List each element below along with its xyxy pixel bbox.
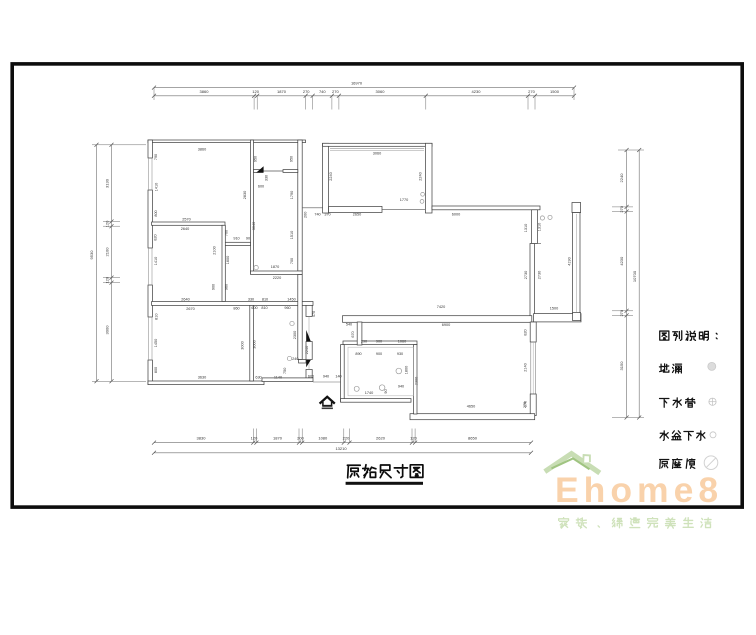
svg-text:1140: 1140 [274, 375, 282, 379]
svg-text:2640: 2640 [181, 227, 189, 231]
svg-text:4230: 4230 [619, 256, 624, 266]
svg-text:1770: 1770 [400, 198, 408, 202]
svg-text:120: 120 [252, 89, 259, 94]
svg-text:Ehome8: Ehome8 [555, 470, 723, 510]
svg-text:2830: 2830 [243, 191, 247, 199]
svg-text:1790: 1790 [290, 191, 294, 199]
svg-text:810: 810 [155, 314, 159, 320]
svg-text:270: 270 [523, 402, 527, 408]
svg-text:4650: 4650 [467, 405, 475, 409]
svg-text:820: 820 [523, 329, 527, 335]
svg-text:3060: 3060 [373, 152, 381, 156]
svg-text:2300: 2300 [415, 377, 419, 385]
svg-text:910: 910 [233, 237, 239, 241]
svg-text:600: 600 [258, 185, 264, 189]
svg-text:800: 800 [154, 367, 158, 373]
svg-text:6900: 6900 [442, 323, 450, 327]
svg-text:3630: 3630 [198, 375, 206, 379]
svg-text:1510: 1510 [290, 231, 294, 239]
svg-text:2240: 2240 [619, 173, 624, 183]
svg-text:2240: 2240 [329, 172, 333, 180]
svg-text:670: 670 [351, 331, 355, 337]
svg-text:1310: 1310 [538, 223, 542, 231]
svg-text:2300: 2300 [293, 331, 297, 339]
svg-text:200: 200 [297, 436, 304, 441]
svg-text:6000: 6000 [452, 213, 460, 217]
svg-text:1740: 1740 [365, 391, 373, 395]
svg-text:120: 120 [105, 276, 110, 283]
svg-text:810: 810 [261, 306, 267, 310]
svg-text:16970: 16970 [351, 81, 363, 86]
svg-text:9530: 9530 [89, 250, 94, 260]
svg-text:740: 740 [319, 89, 326, 94]
svg-text:1410: 1410 [155, 183, 159, 191]
svg-text:4190: 4190 [568, 257, 572, 265]
svg-text:470: 470 [312, 311, 316, 317]
svg-text:1410: 1410 [154, 257, 158, 265]
svg-text:1500: 1500 [550, 306, 558, 310]
svg-text:270: 270 [303, 89, 310, 94]
svg-text:740: 740 [314, 213, 320, 217]
svg-text:370: 370 [324, 213, 330, 217]
svg-text:2240: 2240 [419, 172, 423, 180]
svg-text:7420: 7420 [437, 305, 445, 309]
svg-text:2730: 2730 [538, 271, 542, 279]
svg-text:1080: 1080 [318, 436, 328, 441]
svg-text:2620: 2620 [376, 436, 386, 441]
svg-text:3130: 3130 [105, 178, 110, 188]
svg-text:1870: 1870 [271, 265, 279, 269]
svg-text:540: 540 [346, 323, 352, 327]
svg-text:240: 240 [292, 357, 298, 361]
svg-text:1310: 1310 [524, 224, 528, 232]
svg-text:900: 900 [376, 339, 382, 343]
svg-text:2670: 2670 [186, 307, 194, 311]
svg-text:10700: 10700 [632, 270, 637, 282]
svg-text:1870: 1870 [277, 89, 287, 94]
svg-text:3830: 3830 [197, 436, 207, 441]
svg-text:8650: 8650 [468, 436, 478, 441]
svg-text:600: 600 [251, 306, 257, 310]
svg-text:3860: 3860 [198, 148, 206, 152]
svg-text:120: 120 [105, 220, 110, 227]
svg-text:330: 330 [265, 175, 269, 181]
svg-text:2240: 2240 [305, 346, 309, 354]
svg-text:2730: 2730 [524, 271, 528, 279]
svg-text:220: 220 [343, 436, 350, 441]
svg-text:600: 600 [308, 374, 314, 378]
svg-text:2640: 2640 [181, 297, 189, 301]
svg-text:270: 270 [619, 309, 624, 316]
svg-text:930: 930 [397, 352, 403, 356]
svg-text:200: 200 [303, 212, 307, 218]
svg-text:950: 950 [254, 156, 258, 162]
svg-text:700: 700 [290, 258, 294, 264]
svg-text:330: 330 [248, 297, 254, 301]
svg-text:2650: 2650 [353, 213, 361, 217]
svg-text:790: 790 [154, 154, 158, 160]
svg-text:960: 960 [224, 284, 228, 290]
svg-text:2140: 2140 [523, 363, 527, 371]
svg-text:290: 290 [361, 339, 367, 343]
svg-text:630: 630 [255, 375, 261, 379]
svg-text:3000: 3000 [105, 325, 110, 335]
svg-text:890: 890 [355, 352, 361, 356]
svg-text:1450: 1450 [287, 297, 295, 301]
svg-text:2220: 2220 [273, 276, 281, 280]
svg-text:1870: 1870 [273, 436, 283, 441]
svg-text:940: 940 [398, 385, 404, 389]
svg-text:860: 860 [233, 306, 239, 310]
svg-text:3150: 3150 [619, 361, 624, 371]
svg-text:13210: 13210 [335, 446, 347, 451]
svg-text:270: 270 [332, 89, 339, 94]
svg-text:3000: 3000 [253, 340, 257, 348]
svg-text:3040: 3040 [252, 222, 256, 230]
svg-text:2100: 2100 [213, 246, 217, 254]
svg-text:940: 940 [323, 374, 329, 378]
svg-text:2570: 2570 [182, 217, 190, 221]
svg-text:3000: 3000 [241, 341, 245, 349]
svg-text:3860: 3860 [200, 89, 210, 94]
svg-text:900: 900 [376, 352, 382, 356]
svg-text:950: 950 [290, 156, 294, 162]
svg-text:3060: 3060 [376, 89, 386, 94]
svg-text:1800: 1800 [404, 366, 408, 374]
svg-text:270: 270 [528, 89, 535, 94]
svg-text:120: 120 [251, 436, 258, 441]
svg-text:120: 120 [410, 436, 417, 441]
svg-text:900: 900 [212, 284, 216, 290]
svg-text:800: 800 [154, 210, 158, 216]
svg-text:700: 700 [225, 230, 229, 236]
svg-text:270: 270 [619, 205, 624, 212]
svg-text:1600: 1600 [226, 256, 230, 264]
svg-text:4230: 4230 [472, 89, 482, 94]
svg-text:810: 810 [262, 297, 268, 301]
svg-text:1500: 1500 [550, 89, 560, 94]
svg-text:90: 90 [384, 389, 388, 393]
svg-text:90: 90 [246, 237, 250, 241]
svg-text:1060: 1060 [398, 339, 406, 343]
svg-text:140: 140 [335, 374, 341, 378]
svg-text:1450: 1450 [154, 339, 158, 347]
svg-text:2100: 2100 [105, 247, 110, 257]
svg-text:820: 820 [154, 234, 158, 240]
svg-text:960: 960 [284, 306, 290, 310]
svg-text:750: 750 [283, 368, 287, 374]
